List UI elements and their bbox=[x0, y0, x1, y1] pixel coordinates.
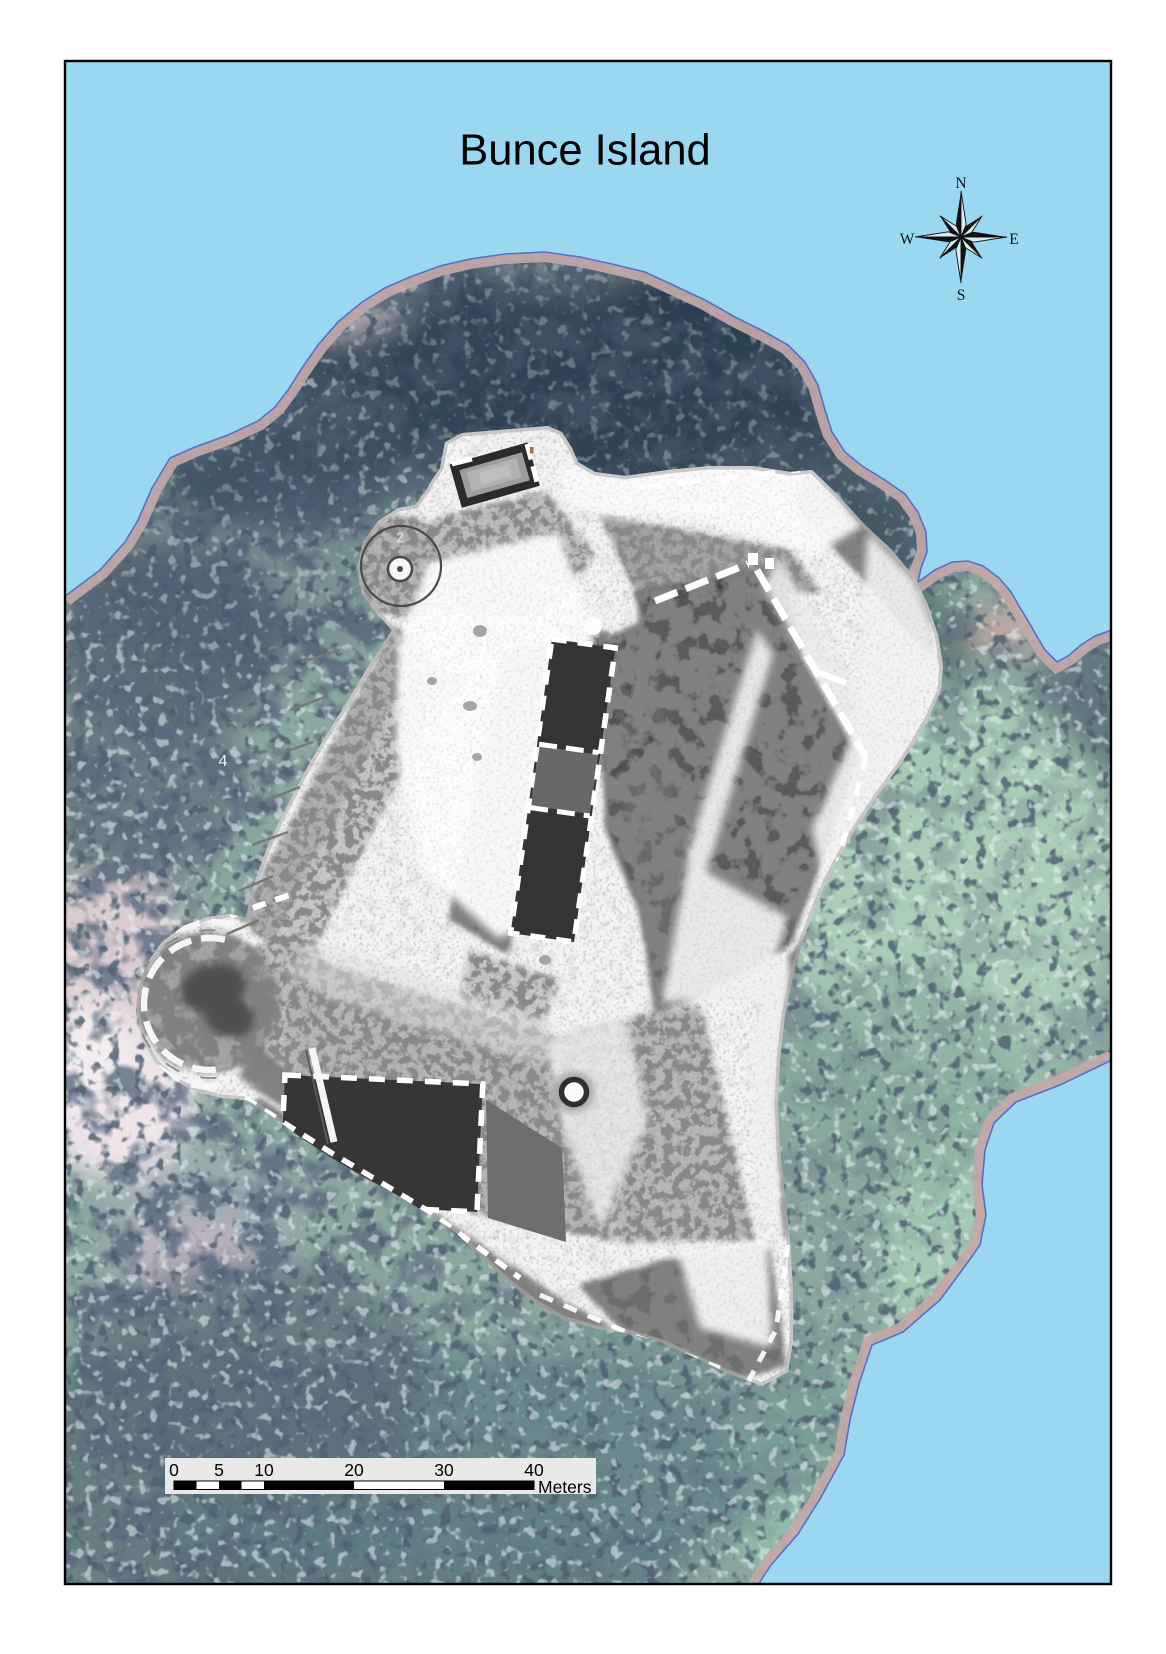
svg-text:S: S bbox=[957, 287, 966, 304]
svg-text:Bunce Island: Bunce Island bbox=[459, 127, 711, 175]
svg-text:Meters: Meters bbox=[538, 1477, 592, 1497]
svg-text:5: 5 bbox=[214, 1460, 224, 1480]
svg-text:10: 10 bbox=[254, 1460, 274, 1480]
svg-text:30: 30 bbox=[434, 1460, 454, 1480]
svg-text:W: W bbox=[900, 231, 915, 248]
svg-text:2: 2 bbox=[396, 530, 404, 545]
svg-text:E: E bbox=[1009, 231, 1018, 248]
svg-text:4: 4 bbox=[219, 753, 228, 770]
svg-text:20: 20 bbox=[344, 1460, 364, 1480]
svg-text:0: 0 bbox=[169, 1460, 179, 1480]
svg-text:N: N bbox=[955, 175, 966, 192]
